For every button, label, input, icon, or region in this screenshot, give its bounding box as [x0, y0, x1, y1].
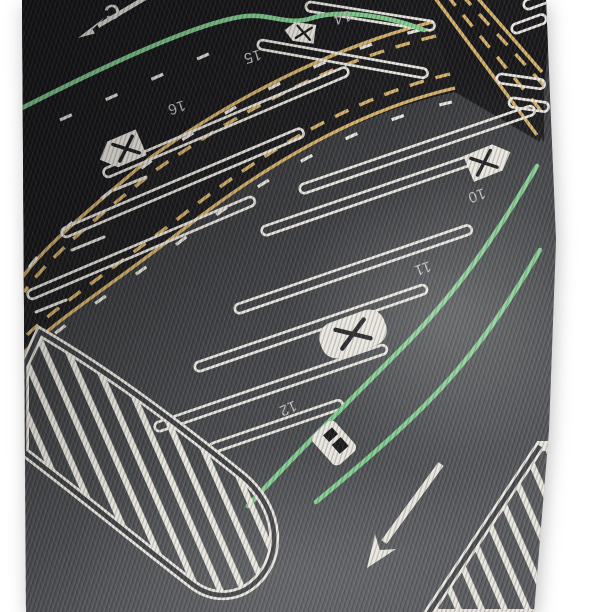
highlight-haze	[295, 160, 612, 450]
fabric-swatch: C 14 15 16 10 11 12	[0, 0, 612, 612]
parking-print: C 14 15 16 10 11 12	[0, 0, 612, 612]
photo-backdrop: C 14 15 16 10 11 12	[0, 0, 612, 612]
